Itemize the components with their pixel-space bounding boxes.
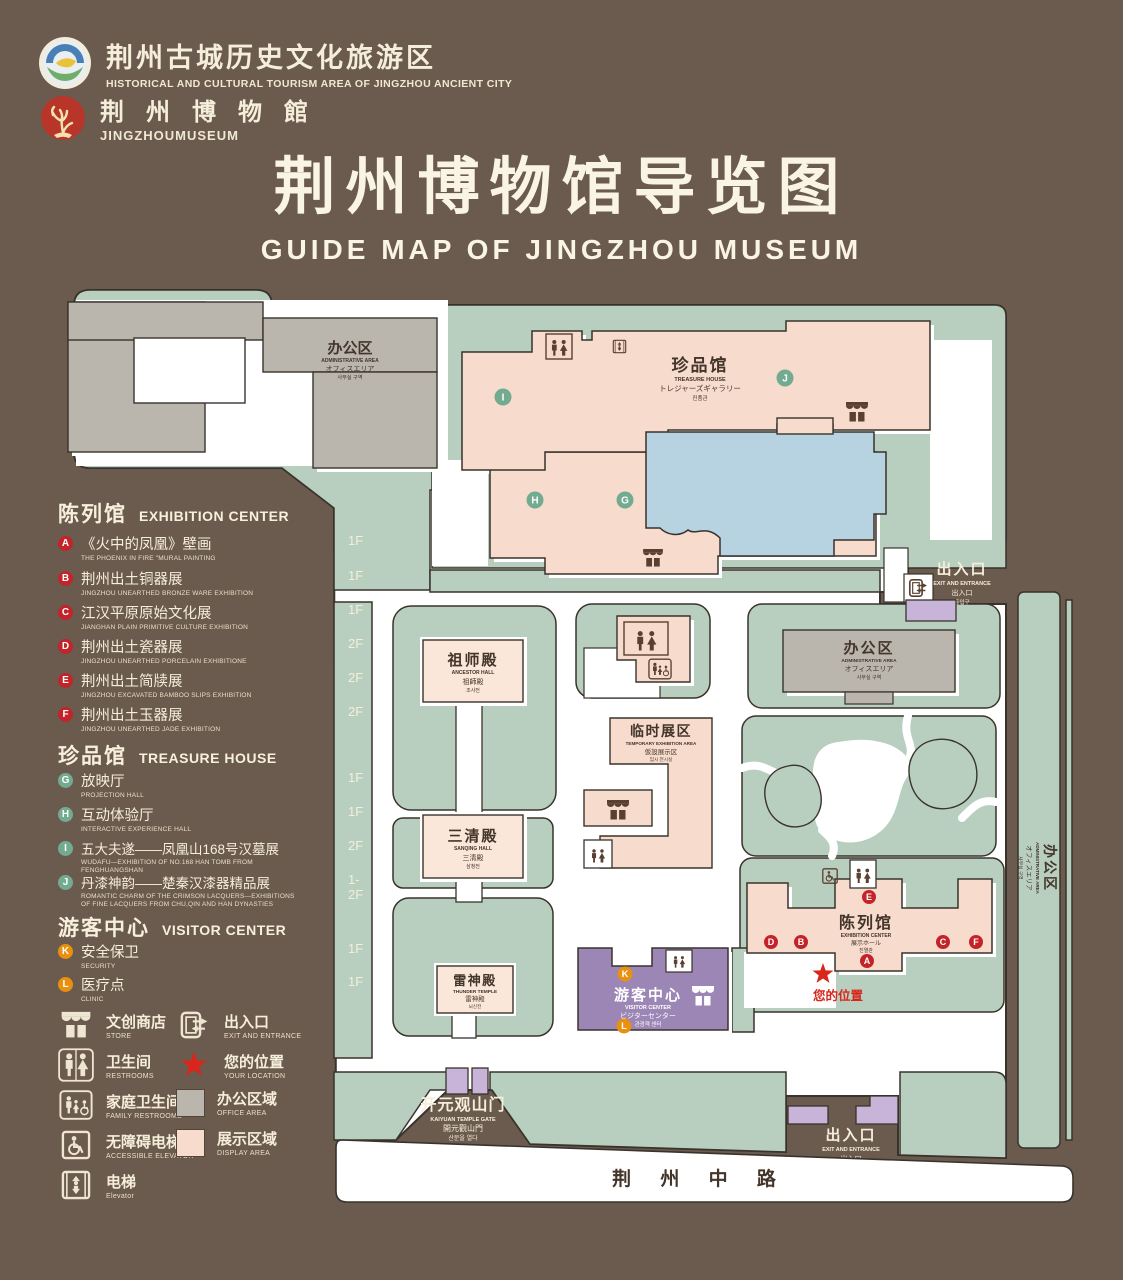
legend-section-exhibition: 陈列馆 EXHIBITION CENTER xyxy=(58,498,289,528)
svg-text:開元觀山門: 開元觀山門 xyxy=(443,1123,483,1133)
svg-text:사무실 구역: 사무실 구역 xyxy=(1017,856,1024,879)
badge-e: E xyxy=(58,673,73,688)
svg-text:조사전: 조사전 xyxy=(466,687,480,694)
badge-l: L xyxy=(58,977,73,992)
svg-text:珍品馆: 珍品馆 xyxy=(672,355,729,375)
svg-text:D: D xyxy=(768,937,775,947)
floor-label: 1F xyxy=(348,568,363,583)
svg-text:您的位置: 您的位置 xyxy=(813,988,864,1003)
floor-label: 1F xyxy=(348,533,363,548)
legend-item-b: B荆州出土铜器展 JINGZHOU UNEARTHED BRONZE WARE … xyxy=(58,568,318,598)
svg-text:雷神殿: 雷神殿 xyxy=(465,994,485,1003)
svg-text:仮設展示区: 仮設展示区 xyxy=(645,747,678,756)
svg-text:祖師殿: 祖師殿 xyxy=(463,677,484,686)
legend-item-i: I五大夫遂——凤凰山168号汉墓展 WUDAFU—EXHIBITION OF N… xyxy=(58,838,318,874)
restrooms-icon xyxy=(58,1048,94,1082)
legend-item-k: K安全保卫 SECURITY 1F xyxy=(58,941,318,971)
legend-facility-exit: 出入口EXIT AND ENTRANCE xyxy=(176,1008,301,1042)
legend-facility-accessible-elevator: 无障碍电梯ACCESSIBLE ELEVATOR xyxy=(58,1128,194,1162)
svg-text:L: L xyxy=(621,1021,627,1032)
svg-text:出入口: 出入口 xyxy=(952,588,973,597)
accessible-elevator-icon xyxy=(58,1128,94,1162)
legend-item-a: A《火中的凤凰》壁画 THE PHOENIX IN FIRE "MURAL PA… xyxy=(58,533,318,563)
svg-text:H: H xyxy=(531,495,538,506)
svg-text:KAIYUAN TEMPLE GATE: KAIYUAN TEMPLE GATE xyxy=(430,1117,496,1123)
svg-text:荆 州 中 路: 荆 州 中 路 xyxy=(612,1167,788,1190)
gate-structure xyxy=(906,600,956,621)
svg-text:ビジターセンター: ビジターセンター xyxy=(620,1011,676,1020)
legend-section-treasure: 珍品馆 TREASURE HOUSE xyxy=(58,740,277,770)
svg-text:출입구: 출입구 xyxy=(954,598,969,606)
badge-h: H xyxy=(58,807,73,822)
location-star-icon xyxy=(176,1048,212,1082)
badge-f: F xyxy=(58,707,73,722)
floor-label: 1F xyxy=(348,602,363,617)
building-ancestor-hall: 祖师殿 ANCESTOR HALL 祖師殿 조사전 xyxy=(420,637,527,706)
svg-text:三清殿: 三清殿 xyxy=(447,827,498,845)
legend-facility-family-restrooms: 家庭卫生间FAMILY RESTROOMS xyxy=(58,1088,182,1122)
floor-label: 2F xyxy=(348,838,363,853)
svg-text:オフィスエリア: オフィスエリア xyxy=(1025,845,1033,891)
exit-icon xyxy=(176,1008,212,1042)
badge-d: D xyxy=(58,639,73,654)
floor-label: 1-2F xyxy=(348,872,363,902)
badge-i: I xyxy=(58,841,73,856)
building-visitor-center: 游客中心 VISITOR CENTER ビジターセンター 관광객 센터 xyxy=(578,948,732,1034)
legend-item-j: J丹漆神韵——楚秦汉漆器精品展 ROMANTIC CHARM OF THE CR… xyxy=(58,872,318,908)
svg-text:C: C xyxy=(940,937,947,947)
temple-column: 祖师殿 ANCESTOR HALL 祖師殿 조사전 三清殿 SANQING HA… xyxy=(420,637,527,1038)
legend-facility-your-location: 您的位置YOUR LOCATION xyxy=(176,1048,285,1082)
legend-item-c: C江汉平原原始文化展 JIANGHAN PLAIN PRIMITIVE CULT… xyxy=(58,602,318,632)
svg-text:办公区: 办公区 xyxy=(843,639,894,657)
legend-item-e: E荆州出土简牍展 JINGZHOU EXCAVATED BAMBOO SLIPS… xyxy=(58,670,318,700)
svg-text:EXIT AND ENTRANCE: EXIT AND ENTRANCE xyxy=(933,581,991,587)
svg-text:SANQING HALL: SANQING HALL xyxy=(454,846,492,852)
svg-text:삼청전: 삼청전 xyxy=(466,863,480,870)
svg-text:K: K xyxy=(622,969,629,980)
svg-text:EXIT AND ENTRANCE: EXIT AND ENTRANCE xyxy=(822,1147,880,1153)
svg-text:사무실 구역: 사무실 구역 xyxy=(337,373,363,381)
svg-text:游客中心: 游客中心 xyxy=(614,986,682,1004)
store-icon xyxy=(58,1008,94,1042)
svg-text:トレジャーズギャラリー: トレジャーズギャラリー xyxy=(659,383,741,393)
svg-text:雷神殿: 雷神殿 xyxy=(453,973,497,988)
svg-text:EXHIBITION CENTER: EXHIBITION CENTER xyxy=(841,933,892,939)
svg-text:オフィスエリア: オフィスエリア xyxy=(845,665,894,673)
restrooms-icon xyxy=(584,840,612,868)
floor-label: 2F xyxy=(348,670,363,685)
badge-j: J xyxy=(58,875,73,890)
office-swatch xyxy=(176,1089,205,1117)
badge-b: B xyxy=(58,571,73,586)
badge-a: A xyxy=(58,536,73,551)
display-swatch xyxy=(176,1129,205,1157)
legend-facility-elevator: 电梯Elevator xyxy=(58,1168,136,1202)
svg-text:진열관: 진열관 xyxy=(859,947,873,954)
floor-label: 2F xyxy=(348,704,363,719)
svg-text:TREASURE HOUSE: TREASURE HOUSE xyxy=(674,377,726,383)
building-admin-right: 办公区 ADMINISTRATIVE AREA オフィスエリア 사무실 구역 xyxy=(783,630,959,704)
elevator-icon xyxy=(58,1168,94,1202)
svg-text:THUNDER TEMPLE: THUNDER TEMPLE xyxy=(453,989,498,995)
legend-item-d: D荆州出土瓷器展 JINGZHOU UNEARTHED PORCELAIN EX… xyxy=(58,636,318,666)
svg-text:办公区: 办公区 xyxy=(1042,844,1058,892)
legend-item-f: F荆州出土玉器展 JINGZHOU UNEARTHED JADE EXHIBIT… xyxy=(58,704,318,734)
svg-text:I: I xyxy=(502,392,505,403)
svg-text:진품관: 진품관 xyxy=(692,394,707,402)
restrooms-icon xyxy=(666,950,692,972)
family-restrooms-icon xyxy=(58,1088,94,1122)
svg-text:임시 전시실: 임시 전시실 xyxy=(650,756,672,762)
svg-text:开元观山门: 开元观山门 xyxy=(420,1095,505,1114)
svg-text:관광객 센터: 관광객 센터 xyxy=(635,1020,662,1028)
svg-text:祖师殿: 祖师殿 xyxy=(446,651,498,669)
floor-label: 2F xyxy=(348,636,363,651)
legend-facility-display-area: 展示区域DISPLAY AREA xyxy=(176,1128,277,1157)
legend-facility-restrooms: 卫生间RESTROOMS xyxy=(58,1048,154,1082)
svg-text:ADMINISTRATIVE AREA: ADMINISTRATIVE AREA xyxy=(321,358,379,364)
floor-label: 1F xyxy=(348,974,363,989)
svg-text:VISITOR CENTER: VISITOR CENTER xyxy=(625,1005,671,1011)
badge-k: K xyxy=(58,944,73,959)
svg-text:陈列馆: 陈列馆 xyxy=(839,913,893,932)
legend-item-l: L医疗点 CLINIC 1F xyxy=(58,974,318,1004)
svg-text:办公区: 办公区 xyxy=(327,339,372,357)
legend-item-h: H互动体验厅 INTERACTIVE EXPERIENCE HALL 1F xyxy=(58,804,318,834)
building-treasure-house: 珍品馆 TREASURE HOUSE トレジャーズギャラリー 진품관 xyxy=(462,321,934,578)
building-thunder-temple: 雷神殿 THUNDER TEMPLE 雷神殿 뇌신전 xyxy=(434,963,516,1016)
svg-text:TEMPORARY EXHIBITION AREA: TEMPORARY EXHIBITION AREA xyxy=(626,741,697,746)
svg-text:ANCESTOR HALL: ANCESTOR HALL xyxy=(452,670,495,676)
badge-c: C xyxy=(58,605,73,620)
svg-text:B: B xyxy=(798,937,805,947)
building-sanqing-hall: 三清殿 SANQING HALL 三清殿 삼청전 xyxy=(420,812,527,882)
svg-text:F: F xyxy=(973,937,979,947)
svg-text:出入口: 出入口 xyxy=(936,560,987,578)
svg-text:オフィスエリア: オフィスエリア xyxy=(326,365,375,373)
svg-text:三清殿: 三清殿 xyxy=(463,853,484,862)
svg-text:展示ホール: 展示ホール xyxy=(851,940,881,947)
svg-text:뇌신전: 뇌신전 xyxy=(469,1003,482,1010)
elevator-icon xyxy=(613,340,625,352)
svg-text:J: J xyxy=(782,373,788,384)
floor-label: 1F xyxy=(348,804,363,819)
floor-label: 1F xyxy=(348,941,363,956)
restrooms-icon xyxy=(850,860,876,888)
svg-text:临时展区: 临时展区 xyxy=(630,723,692,739)
svg-text:G: G xyxy=(621,495,629,506)
badge-g: G xyxy=(58,773,73,788)
svg-text:ADMINISTRATIVE AREA: ADMINISTRATIVE AREA xyxy=(841,658,897,664)
legend-facility-office-area: 办公区域OFFICE AREA xyxy=(176,1088,277,1117)
legend-facility-store: 文创商店STORE xyxy=(58,1008,166,1042)
svg-text:E: E xyxy=(866,892,872,902)
legend-item-g: G放映厅 PROJECTION HALL 1F xyxy=(58,770,318,800)
svg-text:A: A xyxy=(864,956,871,966)
svg-text:산문을 열다: 산문을 열다 xyxy=(448,1134,478,1142)
legend-section-visitor: 游客中心 VISITOR CENTER xyxy=(58,912,286,942)
floor-label: 1F xyxy=(348,770,363,785)
svg-text:사무실 구역: 사무실 구역 xyxy=(857,674,881,681)
svg-text:ADMINISTRATIVE AREA: ADMINISTRATIVE AREA xyxy=(1035,842,1040,895)
svg-text:出入口: 出入口 xyxy=(825,1126,876,1144)
